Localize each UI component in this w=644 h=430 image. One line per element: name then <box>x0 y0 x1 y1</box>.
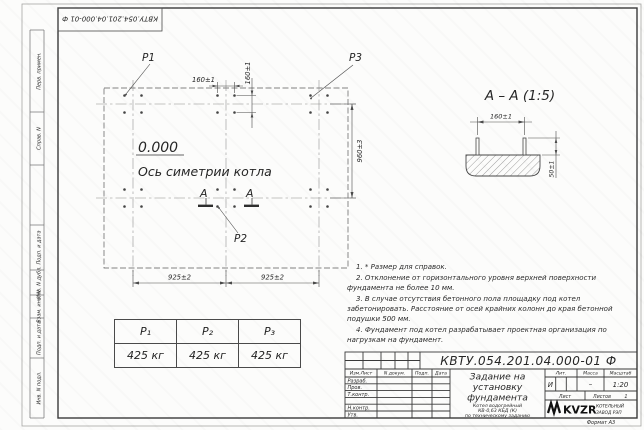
logo-sub-line1: КОТЕЛЬНЫЙ <box>596 403 625 410</box>
margin-label: Справ. N <box>37 127 43 150</box>
doc-title-line1: Задание на <box>470 372 526 383</box>
title-block: КВТУ.054.201.04.000-01 Ф Изм.Лист N доку… <box>345 352 637 419</box>
load-table-value: 425 кг <box>114 343 177 368</box>
sheets-value: 1 <box>624 394 627 400</box>
margin-label: Взам. инв. N <box>37 290 43 323</box>
concrete-pad <box>466 155 540 176</box>
note-line: 4. Фундамент под котел разрабатывает про… <box>347 326 637 346</box>
stamp-title: Задание на установку фундамента Котел во… <box>465 372 530 420</box>
col-izm-list: Изм.Лист <box>350 371 373 377</box>
margin-labels: Перв. примен. Справ. N Подп. и дата Инв.… <box>37 52 43 404</box>
doc-title-line2: установку <box>472 382 523 393</box>
doc-number-rotated: КВТУ.054.201.04.000-01 Ф <box>62 15 158 23</box>
drawing-canvas: Перв. примен. Справ. N Подп. и дата Инв.… <box>0 0 644 430</box>
load-table: Р₁ Р₂ Р₃ 425 кг 425 кг 425 кг <box>115 320 301 368</box>
margin-label: Перв. примен. <box>37 52 43 90</box>
scale-label: Масштаб <box>610 371 632 377</box>
mass-label: Масса <box>583 371 598 377</box>
load-table-header: Р₃ <box>238 319 301 344</box>
axis-label: Ось симетрии котла <box>138 164 272 179</box>
logo: KVZR КОТЕЛЬНЫЙ ЗАВОД РЭП <box>548 403 625 417</box>
sheet-label: Лист <box>558 394 571 400</box>
stamp-signature-rows: Разраб. Пров. Т.контр. Н.контр. Утв. <box>348 378 370 418</box>
note-line: 1. * Размер для справок. <box>347 263 637 273</box>
format-label: Формат А3 <box>587 420 615 426</box>
dim-925-left: 925±2 <box>168 274 191 282</box>
col-data: Дата <box>434 371 447 377</box>
dim-160-vertical: 160±1 <box>244 62 252 85</box>
row-tkontr: Т.контр. <box>348 392 370 398</box>
doc-subtitle-line1: Котел водогрейный <box>473 403 522 409</box>
doc-number-box: КВТУ.054.201.04.000-01 Ф <box>58 8 162 31</box>
lit-value: И <box>548 381 554 389</box>
dim-925-lines <box>133 270 319 287</box>
mass-value: – <box>589 381 593 389</box>
note-line: 3. В случае отсутствия бетонного пола пл… <box>347 295 637 325</box>
dim-160-horizontal: 160±1 <box>192 76 215 84</box>
load-table-header: Р₂ <box>176 319 239 344</box>
section-dim-50: 50±1 <box>549 161 556 178</box>
row-nkontr: Н.контр. <box>348 406 370 412</box>
note-line: 2. Отклонение от горизонтального уровня … <box>347 274 637 294</box>
section-bolt-left <box>476 138 479 155</box>
section-dim-160: 160±1 <box>490 113 512 121</box>
logo-sub-line2: ЗАВОД РЭП <box>596 410 622 416</box>
doc-subtitle-line3: по техническому заданию <box>465 414 530 419</box>
stamp-column-headers: Изм.Лист N докум. Подп. Дата <box>350 371 447 377</box>
section-title: А – А (1:5) <box>484 88 555 104</box>
stamp-right: Лит. Масса Масштаб И – 1:20 Лист Листов … <box>548 371 632 400</box>
notes-block: 1. * Размер для справок. 2. Отклонение о… <box>347 263 637 347</box>
margin-label: Подп. и дата <box>37 230 43 264</box>
elevation-label: 0.000 <box>138 140 178 156</box>
sheets-label: Листов <box>592 394 611 400</box>
load-point-p2: Р2 <box>234 233 247 245</box>
dim-960-lines <box>330 104 356 198</box>
scale-value: 1:20 <box>613 381 629 389</box>
doc-number: КВТУ.054.201.04.000-01 Ф <box>440 354 616 368</box>
plan-view: 160±1 160±1 0.000 Ось симетрии котла Р1 … <box>96 52 364 287</box>
logo-zigzag-icon <box>548 403 560 413</box>
section-bolt-right <box>523 138 526 155</box>
doc-title-line3: фундамента <box>467 393 528 404</box>
row-prov: Пров. <box>348 385 363 391</box>
col-podp: Подп. <box>415 371 429 377</box>
section-view: А – А (1:5) 160±1 50±1 <box>466 88 560 178</box>
doc-subtitle-line2: КВ-0,63 КБД (К) <box>478 408 517 414</box>
margin-label: Инв. N подл. <box>37 371 43 404</box>
dim-960: 960±3 <box>356 140 364 163</box>
load-table-value: 425 кг <box>238 343 301 368</box>
drawing-sheet: Перв. примен. Справ. N Подп. и дата Инв.… <box>0 0 644 430</box>
load-point-p3: Р3 <box>349 52 362 64</box>
col-n-dokum: N докум. <box>384 371 405 377</box>
load-table-value: 425 кг <box>176 343 239 368</box>
margin-label: Подп. и дата <box>37 321 43 355</box>
load-table-header: Р₁ <box>114 319 177 344</box>
logo-text: KVZR <box>563 404 597 417</box>
load-point-p1: Р1 <box>142 52 155 64</box>
section-cut-marks: А А <box>198 187 259 206</box>
lit-label: Лит. <box>555 371 567 377</box>
row-utv: Утв. <box>348 412 359 418</box>
dim-925-right: 925±2 <box>261 274 284 282</box>
row-razrab: Разраб. <box>348 378 368 384</box>
